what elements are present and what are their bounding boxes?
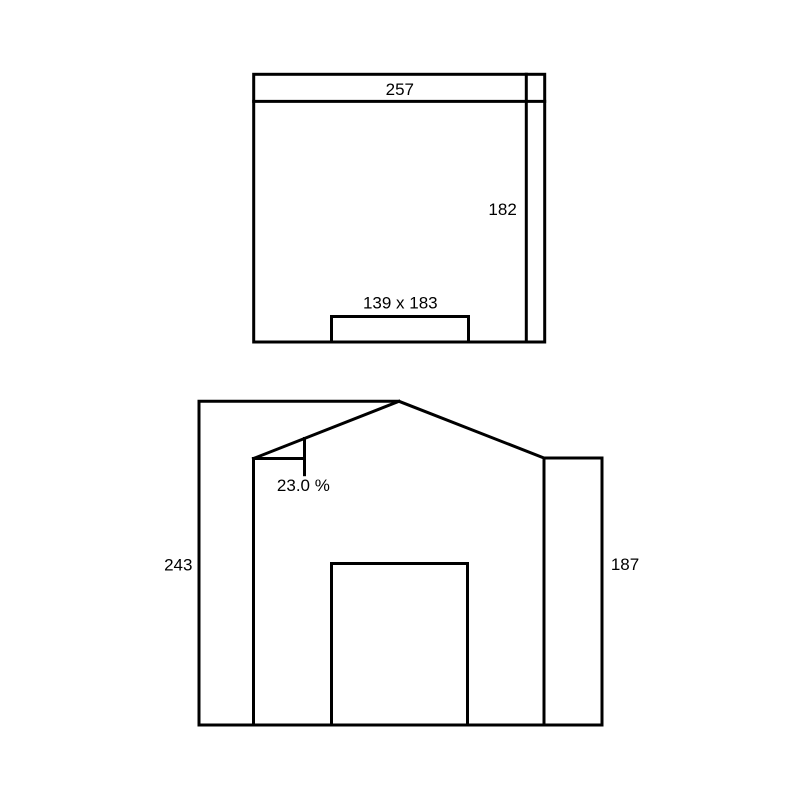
svg-text:23.0 %: 23.0 % [277,476,330,495]
svg-text:182: 182 [488,200,516,219]
svg-text:139 x 183: 139 x 183 [363,294,438,313]
svg-text:187: 187 [611,555,639,574]
svg-text:257: 257 [386,80,414,99]
svg-text:243: 243 [164,556,192,575]
